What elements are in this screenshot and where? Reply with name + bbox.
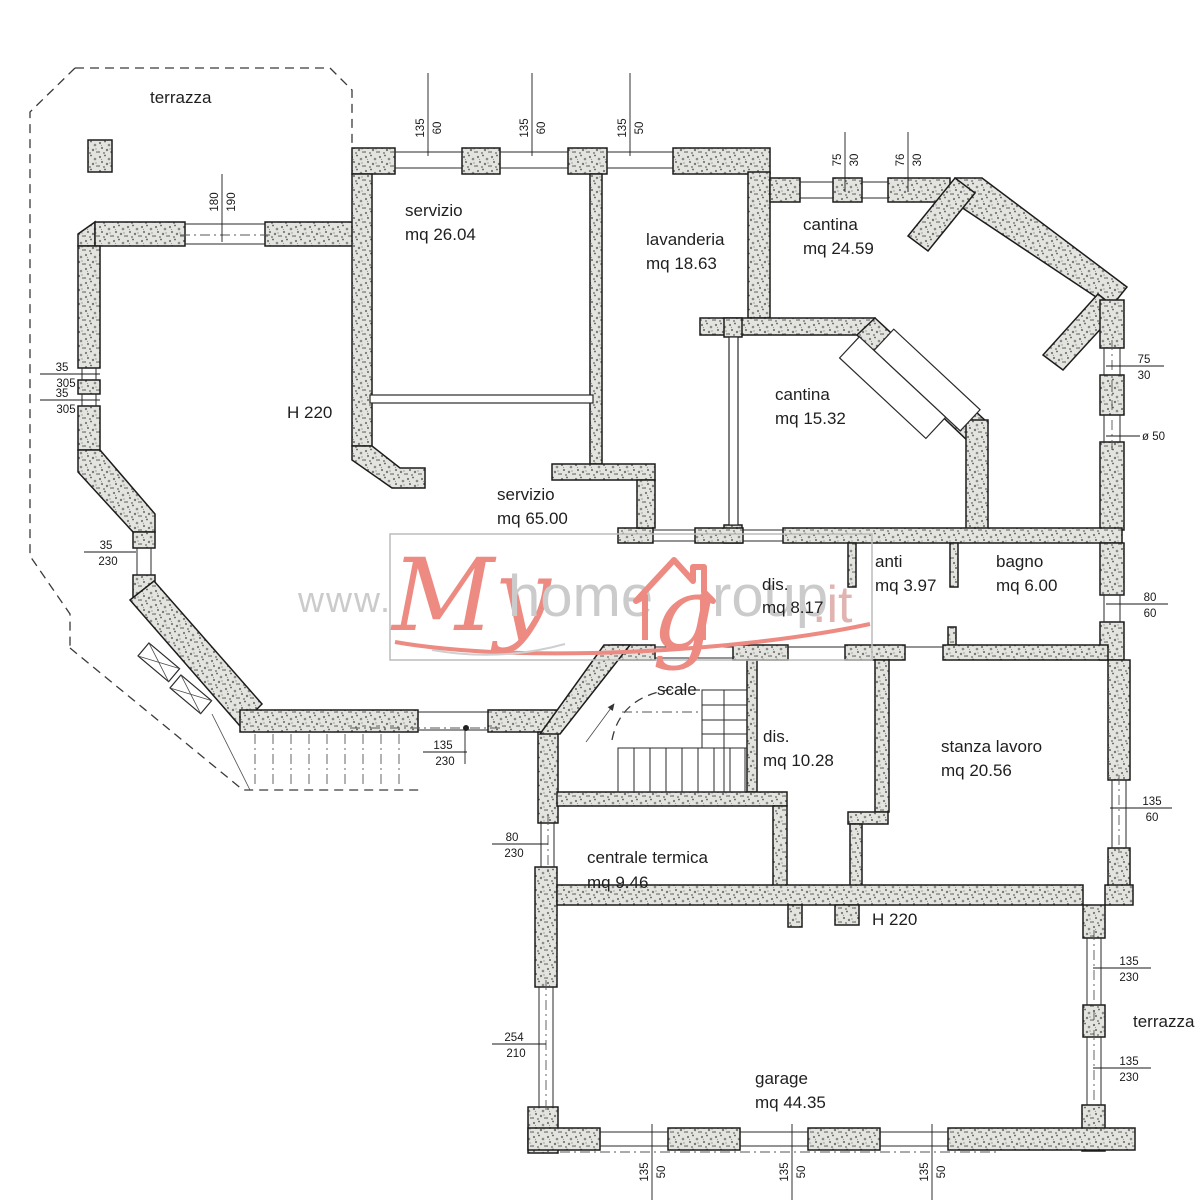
- watermark-www: www.: [297, 579, 392, 620]
- svg-text:305: 305: [56, 404, 75, 416]
- svg-text:mq 8.17: mq 8.17: [762, 598, 823, 617]
- svg-text:230: 230: [1119, 972, 1138, 984]
- svg-text:76: 76: [895, 154, 907, 167]
- svg-text:210: 210: [506, 1048, 525, 1060]
- svg-text:135: 135: [639, 1162, 651, 1181]
- svg-text:ø 50: ø 50: [1142, 431, 1165, 443]
- svg-text:30: 30: [912, 154, 924, 167]
- svg-text:35: 35: [56, 362, 69, 374]
- svg-text:254: 254: [504, 1032, 524, 1044]
- svg-text:mq 15.32: mq 15.32: [775, 409, 846, 428]
- svg-text:mq 24.59: mq 24.59: [803, 239, 874, 258]
- svg-text:mq 3.97: mq 3.97: [875, 576, 936, 595]
- svg-text:30: 30: [1138, 370, 1151, 382]
- svg-text:30: 30: [849, 154, 861, 167]
- walls: [78, 140, 1135, 1153]
- room-label-stanza-lavoro: stanza lavoro: [941, 737, 1042, 756]
- svg-text:50: 50: [796, 1166, 808, 1179]
- room-label-servizio-65: servizio: [497, 485, 555, 504]
- svg-text:135: 135: [919, 1162, 931, 1181]
- cantina15-partition: [729, 337, 738, 525]
- svg-text:75: 75: [1138, 354, 1151, 366]
- room-label-lavanderia: lavanderia: [646, 230, 725, 249]
- svg-text:135: 135: [617, 118, 629, 137]
- room-label-servizio-26: servizio: [405, 201, 463, 220]
- svg-text:135: 135: [1142, 796, 1161, 808]
- svg-text:35: 35: [100, 540, 113, 552]
- height-note-1: H 220: [287, 403, 332, 422]
- room-label-cantina-24: cantina: [803, 215, 858, 234]
- svg-text:135: 135: [1119, 1056, 1138, 1068]
- dimensions: 13560 13560 13550 7530 7630 180190 35305…: [40, 73, 1172, 1200]
- svg-text:230: 230: [1119, 1072, 1138, 1084]
- room-label-dis-10: dis.: [763, 727, 789, 746]
- svg-text:80: 80: [506, 832, 519, 844]
- room-label-terrazza-top: terrazza: [150, 88, 212, 107]
- svg-text:80: 80: [1144, 592, 1157, 604]
- svg-text:mq 18.63: mq 18.63: [646, 254, 717, 273]
- svg-text:60: 60: [432, 122, 444, 135]
- room-label-dis-8: dis.: [762, 575, 788, 594]
- svg-text:230: 230: [504, 848, 523, 860]
- svg-text:50: 50: [656, 1166, 668, 1179]
- room-label-garage: garage: [755, 1069, 808, 1088]
- svg-text:35: 35: [56, 388, 69, 400]
- svg-text:190: 190: [226, 192, 238, 211]
- svg-text:75: 75: [832, 154, 844, 167]
- svg-text:mq 26.04: mq 26.04: [405, 225, 476, 244]
- svg-text:mq 44.35: mq 44.35: [755, 1093, 826, 1112]
- room-label-bagno: bagno: [996, 552, 1043, 571]
- floor-plan: www. My home g roup .it 13560 13560 1355…: [0, 0, 1200, 1200]
- svg-text:180: 180: [209, 192, 221, 211]
- svg-text:230: 230: [435, 756, 454, 768]
- watermark-home: home: [508, 564, 653, 629]
- room-label-centrale-termica: centrale termica: [587, 848, 708, 867]
- watermark-roup: roup: [712, 564, 828, 629]
- svg-text:135: 135: [779, 1162, 791, 1181]
- svg-text:230: 230: [98, 556, 117, 568]
- svg-text:135: 135: [433, 740, 452, 752]
- svg-text:50: 50: [634, 122, 646, 135]
- svg-text:135: 135: [519, 118, 531, 137]
- servizio26-partition: [370, 395, 593, 403]
- svg-text:60: 60: [1146, 812, 1159, 824]
- room-label-terrazza-bottom: terrazza: [1133, 1012, 1195, 1031]
- room-label-anti: anti: [875, 552, 902, 571]
- room-label-scale: scale: [657, 680, 697, 699]
- terrace-pillar: [88, 140, 112, 172]
- svg-text:mq 10.28: mq 10.28: [763, 751, 834, 770]
- staircase: [586, 690, 747, 792]
- svg-text:mq 6.00: mq 6.00: [996, 576, 1057, 595]
- svg-text:60: 60: [1144, 608, 1157, 620]
- svg-text:50: 50: [936, 1166, 948, 1179]
- svg-text:135: 135: [1119, 956, 1138, 968]
- height-note-2: H 220: [872, 910, 917, 929]
- room-label-cantina-15: cantina: [775, 385, 830, 404]
- svg-text:60: 60: [536, 122, 548, 135]
- svg-text:mq 65.00: mq 65.00: [497, 509, 568, 528]
- watermark-g: g: [652, 555, 716, 672]
- svg-text:mq 9.46: mq 9.46: [587, 873, 648, 892]
- svg-text:135: 135: [415, 118, 427, 137]
- svg-text:mq 20.56: mq 20.56: [941, 761, 1012, 780]
